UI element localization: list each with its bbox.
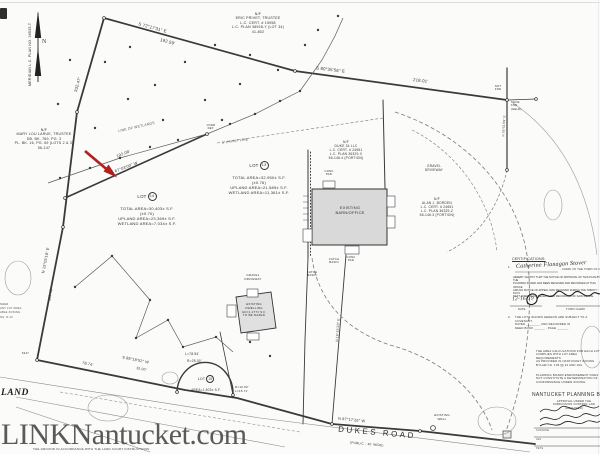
link-nantucket-watermark: LINKNantucket.com [1,420,247,450]
boundary-east-tick [507,99,536,100]
boundary-north [104,18,507,100]
privet-line-dashed [217,118,383,143]
conc-pad-north [323,181,335,188]
board-signature-1 [540,406,599,412]
parcel-boundaries [37,18,536,444]
clerk-signature [527,291,600,304]
driveway-curve-inner [412,130,497,252]
boundary-monuments [36,17,538,433]
wetland-zigzag [75,256,233,352]
survey-plot-plan: MERIDIAN L.C. PLAN NO. 36535-T N N/F ERI… [0,0,600,454]
interior-lot-line-west [220,332,233,395]
buildings [227,181,511,438]
driveway-curve-outer [395,112,529,431]
dwelling-building [236,292,276,333]
conc-pad-south [345,246,359,254]
red-pointer-arrow [85,151,117,178]
east-line-dashed [447,170,507,252]
vegetation-outlines [5,190,600,435]
driveway-dashed-lines [60,112,529,432]
boundary-west [37,18,104,360]
barn-lot-west-line [383,100,385,188]
well-symbol [431,426,436,431]
signatures [527,291,600,426]
certification-rules [510,272,600,446]
north-arrow-icon [35,11,41,82]
plan-linework [0,0,600,454]
interior-lot-line-middle [303,258,308,424]
scan-mark [0,8,7,19]
shed-building [503,431,511,438]
interior-lot-line-diagonal [65,134,207,198]
wetland-flag-dots [57,15,339,357]
board-signature-3 [540,421,600,426]
tree-line-curve [513,103,597,255]
interior-lot-line-east [332,255,346,424]
barn-building [312,189,387,245]
board-signature-2 [540,414,600,420]
